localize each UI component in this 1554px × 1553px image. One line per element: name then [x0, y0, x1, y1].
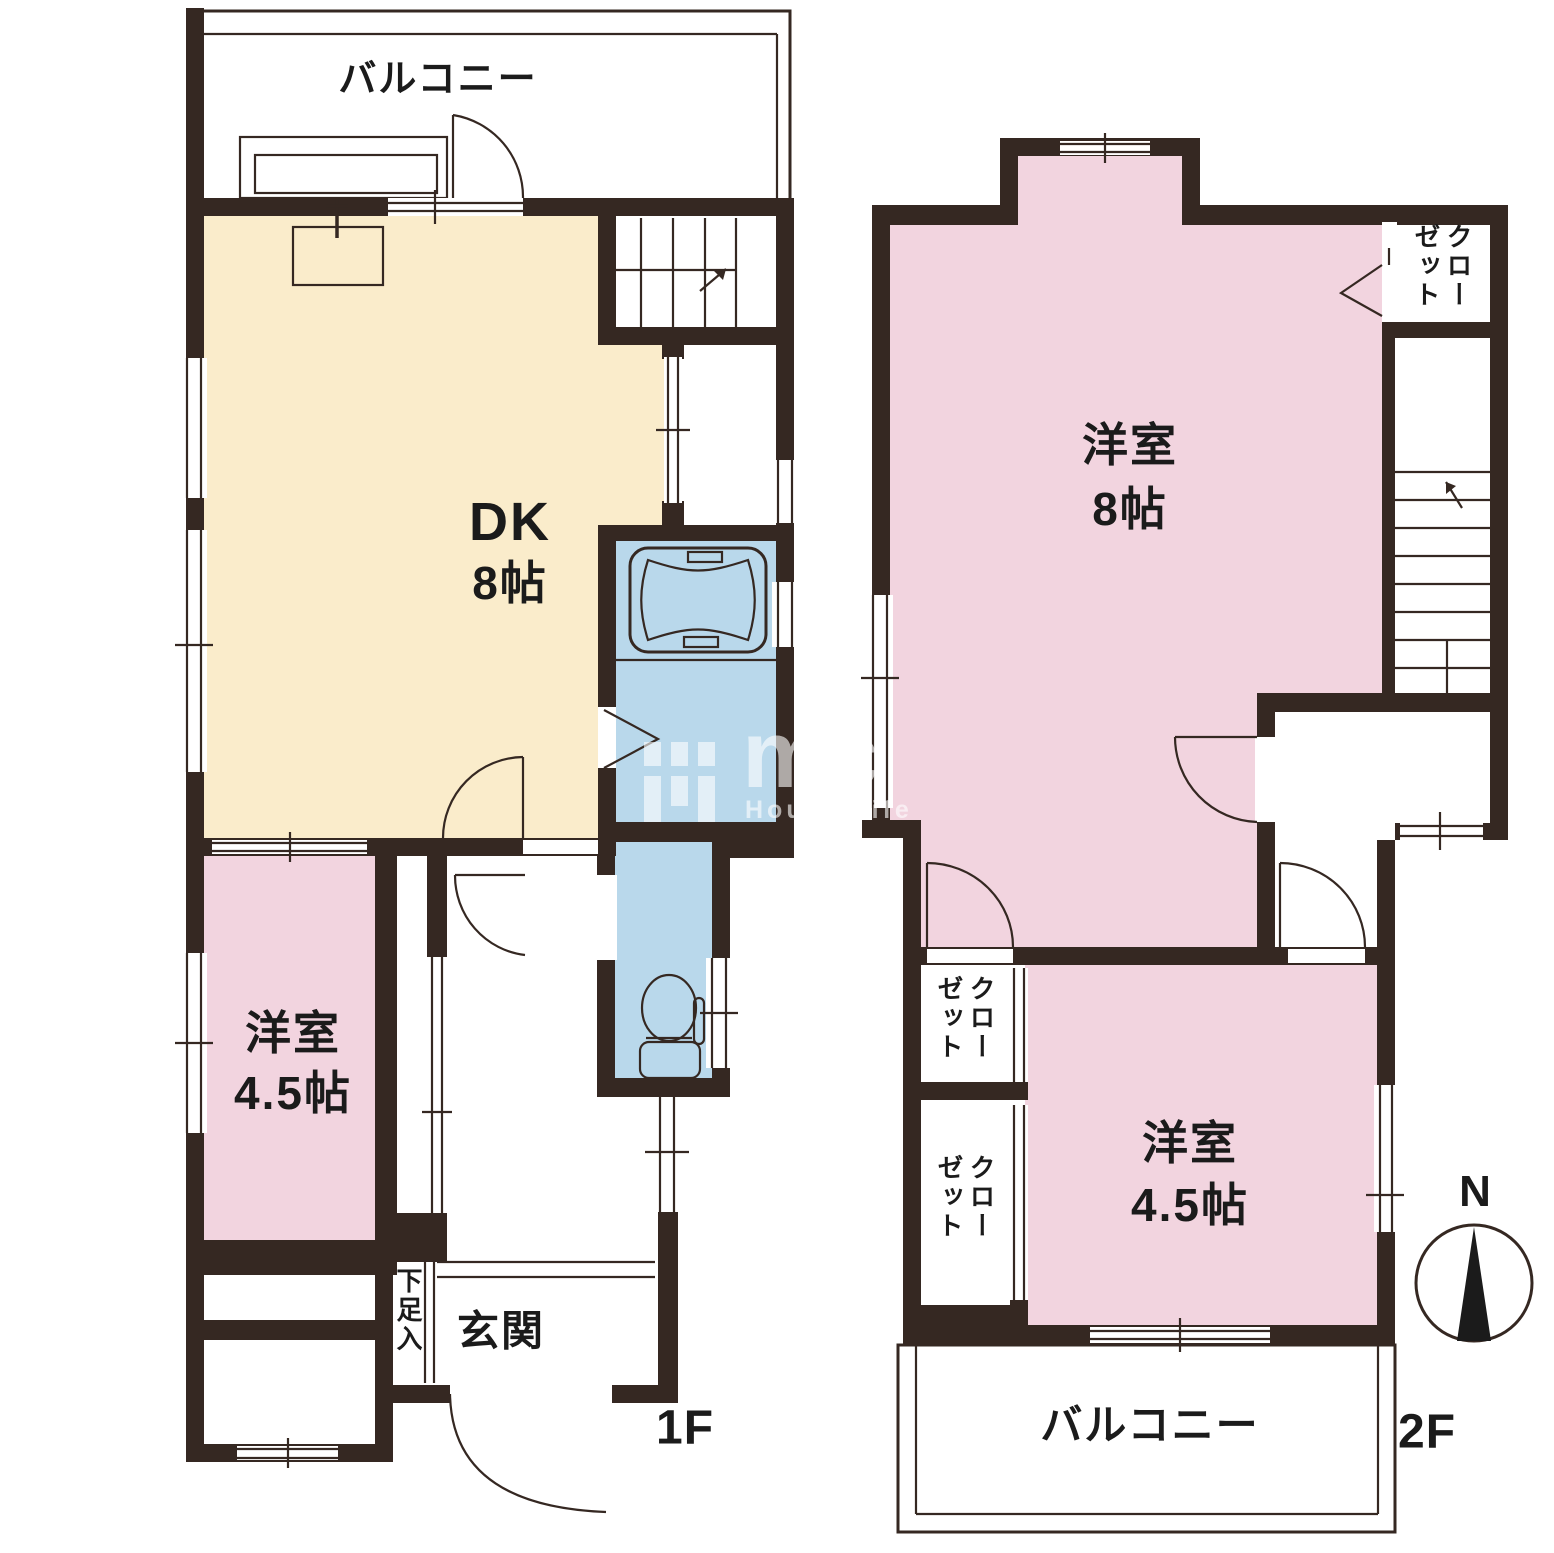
watermark-logo-icon	[644, 742, 734, 822]
balcony-door-arc	[453, 115, 523, 198]
balcony-label-1f: バルコニー	[338, 48, 537, 103]
western-room-45-1f-size: 4.5帖	[234, 1057, 352, 1123]
dk-room	[204, 216, 667, 838]
western-room-8-2f-label: 洋室	[1082, 409, 1178, 475]
entrance-label: 玄関	[457, 1298, 545, 1359]
north-compass-icon	[1416, 1225, 1532, 1341]
dk-room-label: DK	[469, 491, 551, 553]
floor2-label: 2F	[1398, 1405, 1456, 1460]
western-room-45-2f-label: 洋室	[1142, 1107, 1238, 1173]
floor2-plan	[861, 133, 1532, 1532]
closet-b-label: クローゼット	[933, 1154, 997, 1250]
watermark-subtitle: House Life	[745, 796, 913, 825]
stairs-2f	[1395, 472, 1490, 693]
floor1-label: 1F	[656, 1401, 714, 1456]
closet-top-label: クローゼット	[1410, 223, 1474, 319]
floorplan-image: .wall{fill:#352822;} .thin{stroke:#35282…	[0, 0, 1554, 1553]
balcony-1f	[189, 11, 790, 213]
stairs-1f	[616, 218, 736, 327]
closet-a-label: クローゼット	[933, 975, 997, 1071]
watermark-logo-text: mc	[742, 700, 877, 810]
shoe-storage-label: 下足入	[392, 1267, 424, 1377]
western-room-8-2f-size: 8帖	[1092, 473, 1168, 539]
balcony-label-2f: バルコニー	[1040, 1392, 1259, 1453]
western-room-8-2f	[890, 156, 1382, 947]
dk-room-size: 8帖	[472, 547, 548, 613]
western-room-45-1f-label: 洋室	[245, 997, 341, 1063]
western-room-45-2f-size: 4.5帖	[1131, 1169, 1249, 1235]
entrance-door-arc	[450, 1394, 606, 1512]
compass-north-label: N	[1459, 1167, 1493, 1217]
